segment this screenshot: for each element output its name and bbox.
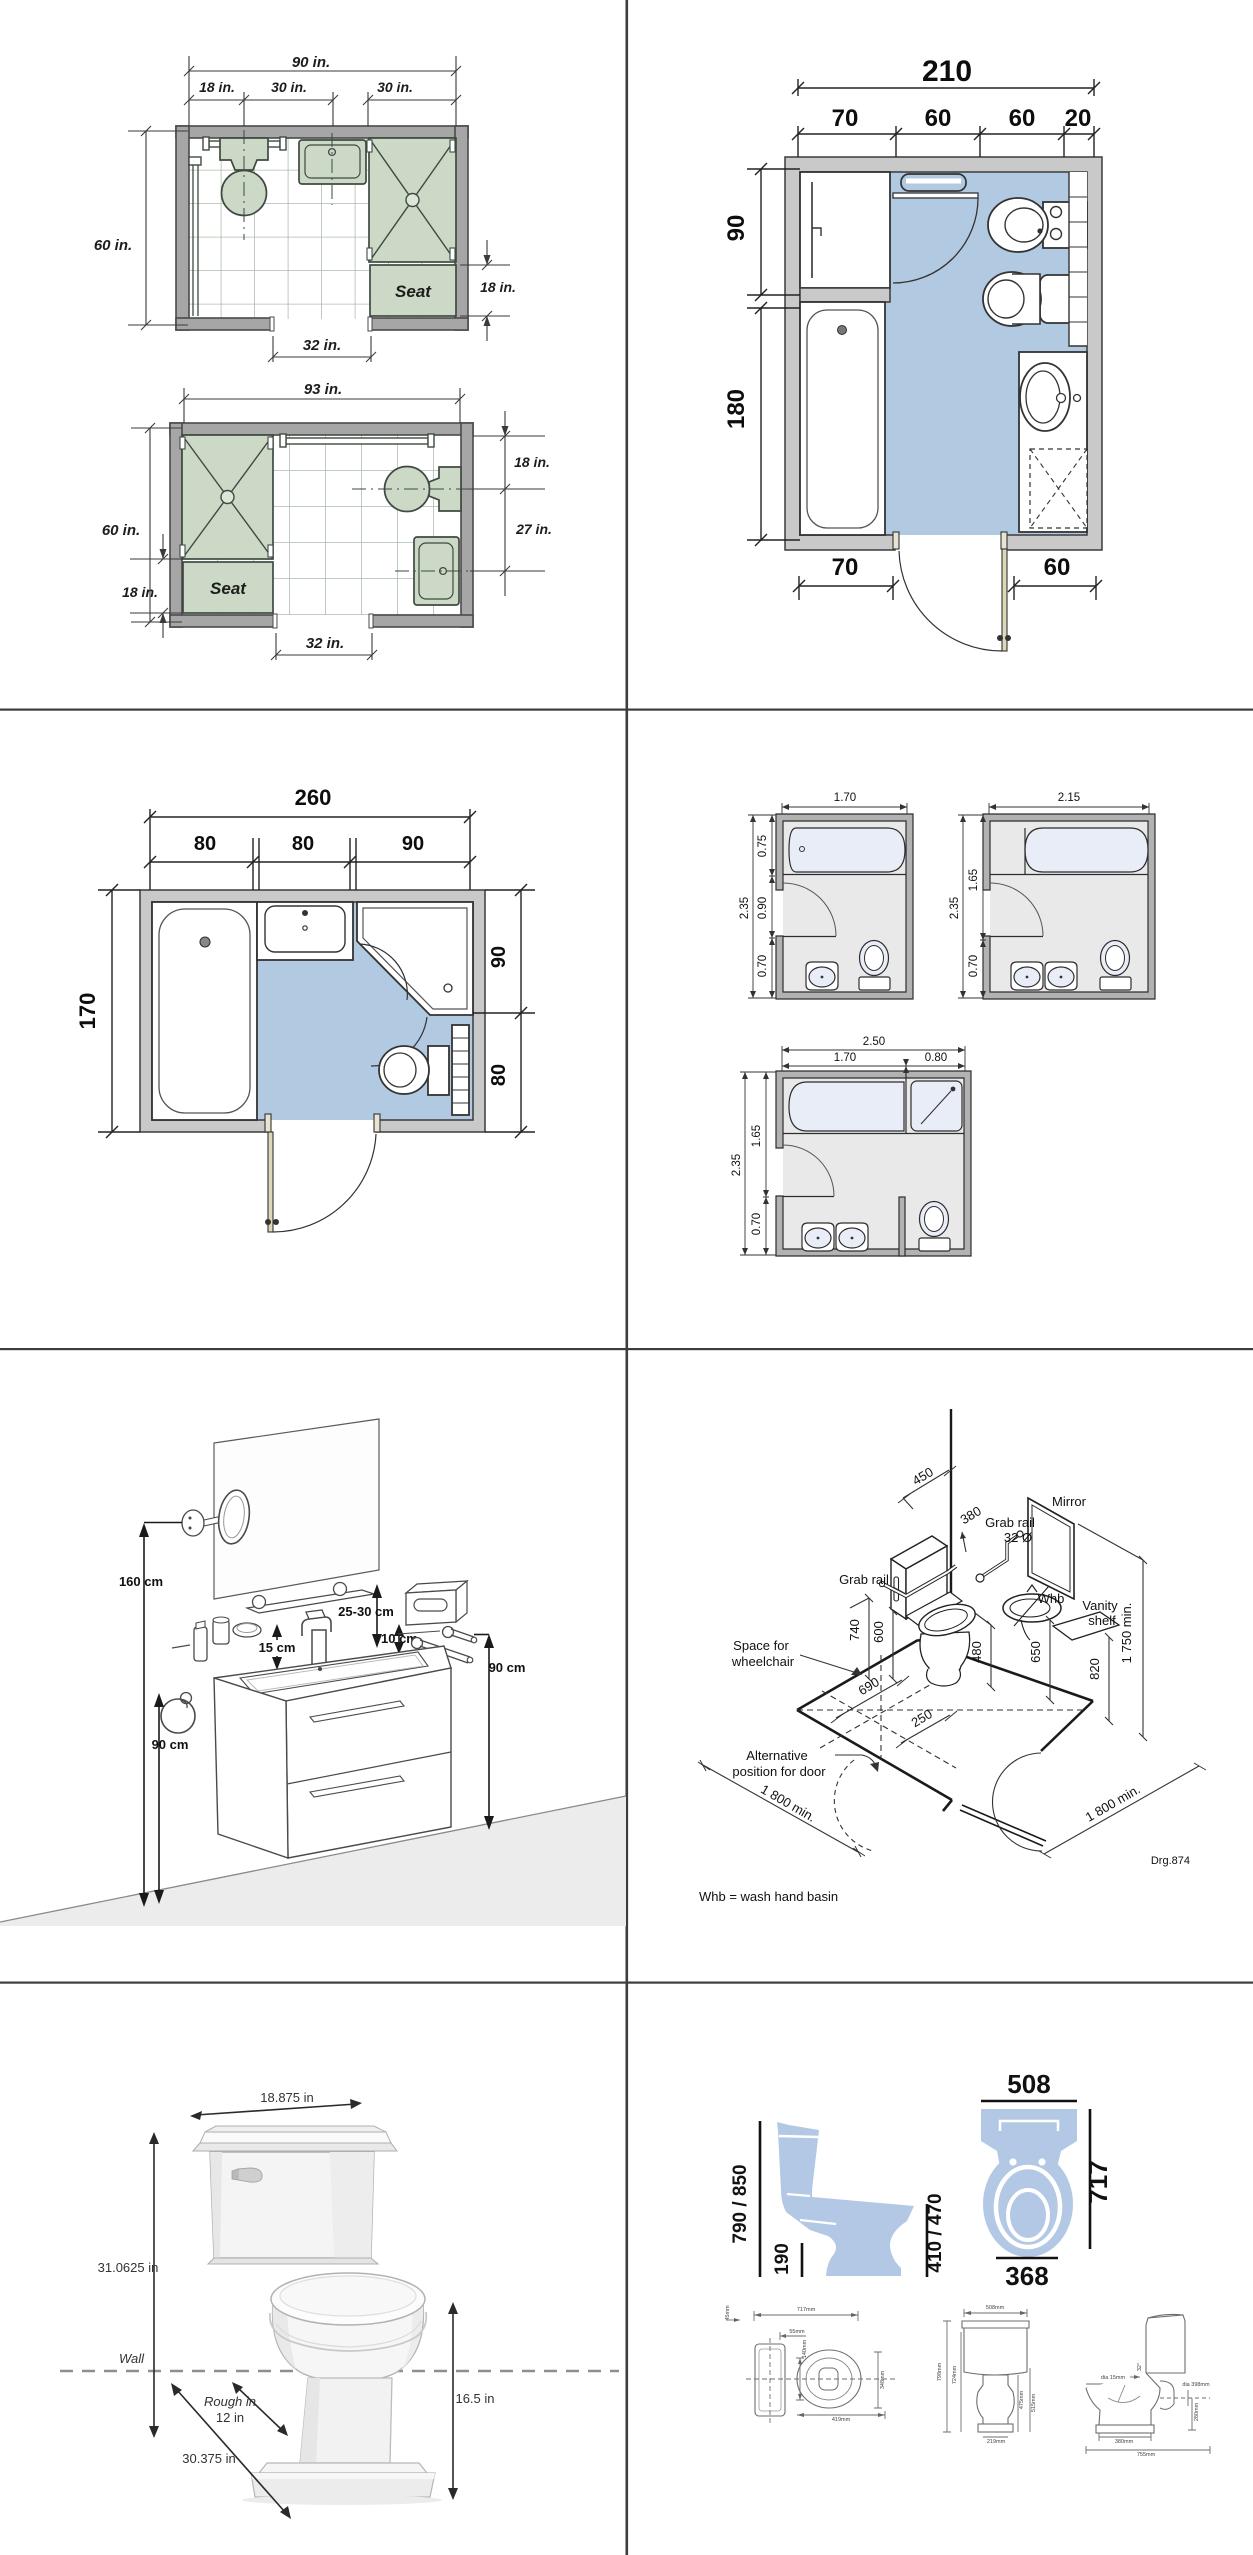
svg-text:30.375 in: 30.375 in [182,2451,236,2466]
svg-text:1.70: 1.70 [834,1052,856,1064]
svg-text:32 in.: 32 in. [303,337,341,354]
svg-text:0.70: 0.70 [968,955,980,977]
svg-text:16.5 in: 16.5 in [455,2391,494,2406]
svg-text:Grab rail: Grab rail [985,1515,1035,1530]
svg-text:60 in.: 60 in. [94,237,132,254]
svg-text:508: 508 [1007,2069,1050,2099]
svg-text:717: 717 [1083,2160,1113,2203]
svg-text:Whb: Whb [1038,1591,1065,1606]
svg-text:160 cm: 160 cm [119,1574,163,1589]
svg-text:80: 80 [488,1064,510,1086]
svg-text:Seat: Seat [210,579,247,598]
svg-text:25-30 cm: 25-30 cm [338,1604,394,1619]
svg-text:60 in.: 60 in. [102,522,140,539]
svg-text:Alternative: Alternative [746,1748,807,1763]
svg-text:32°: 32° [1137,2363,1143,2371]
svg-text:2.35: 2.35 [739,897,751,919]
svg-text:90: 90 [402,833,424,855]
svg-text:140mm: 140mm [802,2339,808,2358]
svg-text:18.875 in: 18.875 in [260,2090,314,2105]
svg-text:798mm: 798mm [937,2362,943,2381]
svg-text:2.15: 2.15 [1058,792,1080,804]
svg-text:180: 180 [723,389,750,429]
svg-text:0.70: 0.70 [757,955,769,977]
svg-text:18 in.: 18 in. [514,454,550,470]
svg-text:1.70: 1.70 [834,792,856,804]
svg-text:348mm: 348mm [880,2370,886,2389]
svg-text:2.50: 2.50 [863,1036,885,1048]
svg-text:717mm: 717mm [797,2307,816,2313]
svg-text:0.70: 0.70 [751,1213,763,1235]
svg-text:170: 170 [75,993,100,1030]
svg-text:70: 70 [832,105,859,132]
svg-text:position for door: position for door [732,1764,826,1779]
svg-text:219mm: 219mm [987,2439,1006,2445]
svg-text:Vanity: Vanity [1082,1598,1118,1613]
svg-text:790 / 850: 790 / 850 [730,2164,751,2243]
svg-text:Space for: Space for [733,1638,789,1653]
svg-text:755mm: 755mm [1137,2452,1156,2458]
svg-text:18 in.: 18 in. [199,79,235,95]
svg-text:27 in.: 27 in. [515,521,552,537]
svg-text:2.35: 2.35 [731,1154,743,1176]
svg-text:210: 210 [922,55,972,88]
svg-text:368: 368 [1005,2261,1048,2291]
svg-text:475mm: 475mm [1019,2390,1025,2409]
svg-text:419mm: 419mm [832,2417,851,2423]
svg-text:32 Ø: 32 Ø [1004,1530,1032,1545]
svg-text:70: 70 [832,554,859,581]
svg-text:60: 60 [1044,554,1071,581]
svg-text:31.0625 in: 31.0625 in [98,2260,159,2275]
svg-text:93 in.: 93 in. [304,381,342,398]
svg-text:Seat: Seat [395,282,432,301]
svg-text:wheelchair: wheelchair [731,1654,795,1669]
svg-text:2.35: 2.35 [949,897,961,919]
svg-text:90: 90 [488,946,510,968]
svg-text:80: 80 [194,833,216,855]
svg-text:0.90: 0.90 [757,897,769,919]
svg-text:dia 398mm: dia 398mm [1182,2382,1210,2388]
svg-text:1 750 min.: 1 750 min. [1119,1603,1134,1664]
svg-text:20: 20 [1065,105,1092,132]
svg-text:18 in.: 18 in. [480,279,516,295]
svg-text:1.65: 1.65 [968,869,980,891]
svg-text:dia 15mm: dia 15mm [1101,2375,1126,2381]
svg-text:1.65: 1.65 [751,1125,763,1147]
svg-text:Rough in: Rough in [204,2394,256,2409]
svg-text:280mm: 280mm [1194,2402,1200,2421]
svg-text:600: 600 [871,1621,886,1643]
svg-text:90: 90 [723,215,750,242]
svg-text:650: 650 [1028,1641,1043,1663]
svg-text:820: 820 [1087,1658,1102,1680]
svg-text:Grab rail: Grab rail [839,1572,889,1587]
svg-text:0.80: 0.80 [925,1052,947,1064]
svg-text:190: 190 [772,2243,793,2275]
svg-text:260: 260 [295,785,332,810]
svg-text:90 cm: 90 cm [152,1737,189,1752]
svg-text:55mm: 55mm [789,2329,805,2335]
svg-text:Whb = wash hand basin: Whb = wash hand basin [699,1889,838,1904]
svg-text:12 in: 12 in [216,2410,244,2425]
svg-text:30 in.: 30 in. [271,79,307,95]
svg-text:90 in.: 90 in. [292,54,330,71]
svg-text:90 cm: 90 cm [489,1660,526,1675]
svg-text:30 in.: 30 in. [377,79,413,95]
svg-text:508mm: 508mm [986,2305,1005,2311]
svg-text:18 in.: 18 in. [122,584,158,600]
svg-text:0.75: 0.75 [757,835,769,857]
svg-text:15 cm: 15 cm [259,1640,296,1655]
svg-text:32 in.: 32 in. [306,635,344,652]
svg-text:Wall: Wall [119,2351,145,2366]
svg-text:515mm: 515mm [1031,2393,1037,2412]
svg-text:724mm: 724mm [952,2365,958,2384]
svg-text:480: 480 [969,1641,984,1663]
svg-text:Drg.874: Drg.874 [1151,1855,1190,1867]
svg-text:45mm: 45mm [725,2305,731,2321]
svg-text:80: 80 [292,833,314,855]
svg-text:60: 60 [925,105,952,132]
svg-text:380mm: 380mm [1115,2439,1134,2445]
svg-text:Mirror: Mirror [1052,1494,1087,1509]
svg-text:60: 60 [1009,105,1036,132]
svg-text:shelf: shelf [1088,1613,1116,1628]
svg-text:740: 740 [847,1619,862,1641]
